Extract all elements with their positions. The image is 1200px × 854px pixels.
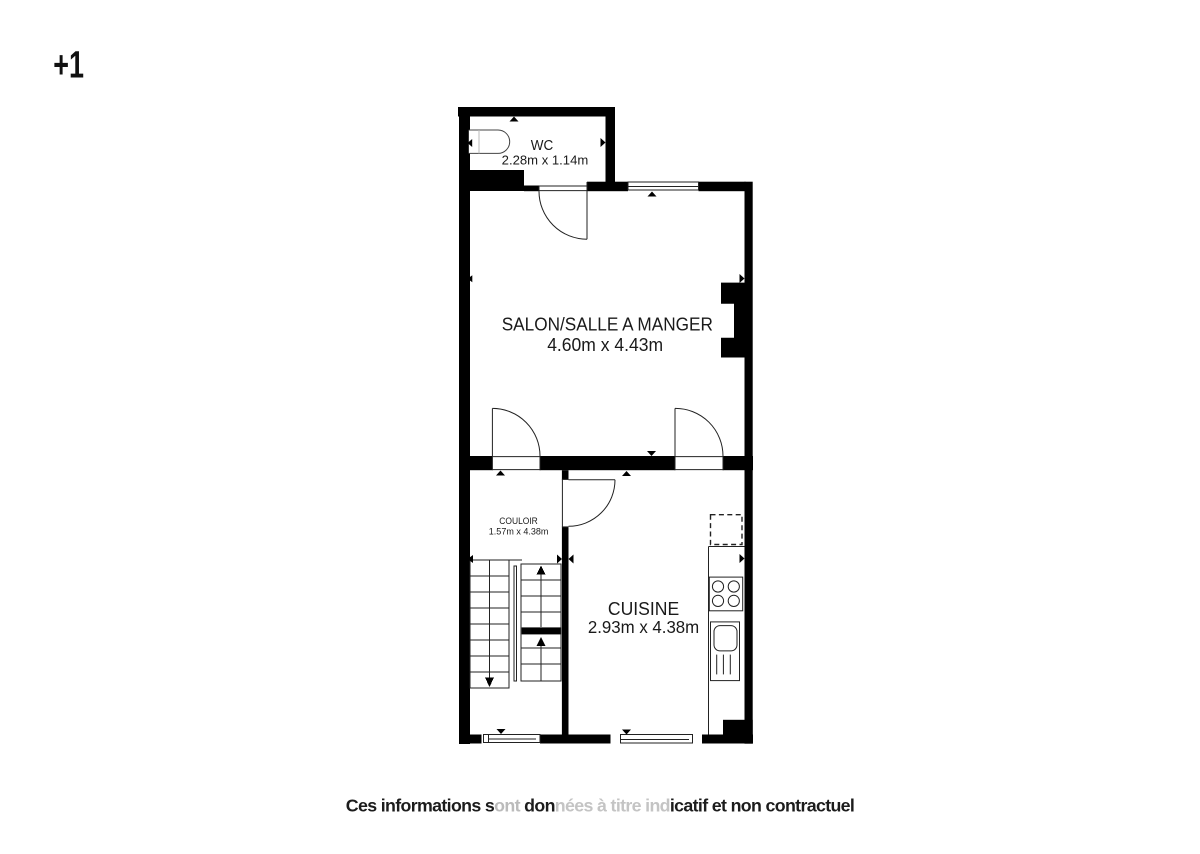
svg-text:SALON/SALLE A MANGER: SALON/SALLE A MANGER [502, 314, 713, 334]
svg-text:2.28m x 1.14m: 2.28m x 1.14m [502, 153, 589, 168]
svg-text:2.93m x 4.38m: 2.93m x 4.38m [588, 617, 699, 637]
svg-text:Ces informations sont données: Ces informations sont données à titre in… [346, 796, 854, 816]
svg-text:1.57m x 4.38m: 1.57m x 4.38m [489, 525, 549, 536]
svg-text:CUISINE: CUISINE [608, 599, 679, 619]
svg-text:+1: +1 [53, 44, 84, 86]
svg-text:4.60m x 4.43m: 4.60m x 4.43m [547, 335, 663, 355]
svg-text:COULOIR: COULOIR [499, 516, 538, 526]
